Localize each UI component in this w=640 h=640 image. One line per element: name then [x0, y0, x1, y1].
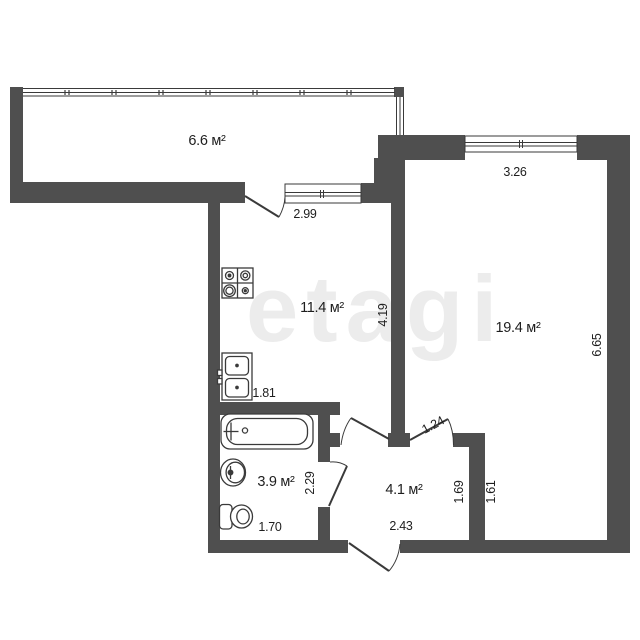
hallway-width-dim: 2.43 [389, 519, 412, 533]
kitchen-sink-icon [218, 353, 253, 400]
bathroom-door [329, 462, 347, 506]
bathroom-area-label: 3.9 м² [257, 474, 294, 490]
wall [394, 87, 404, 97]
wall [378, 135, 465, 160]
entrance-door [349, 543, 400, 571]
kitchen-window [285, 184, 361, 203]
living-room-window [465, 136, 577, 152]
floor-plan-drawing: etagi [0, 0, 640, 640]
wall [208, 540, 348, 553]
doors [245, 196, 454, 571]
hallway-area-label: 4.1 м² [385, 482, 422, 498]
room-depth-dim: 6.65 [590, 333, 604, 356]
hallway-depth-dim: 1.69 [452, 480, 466, 503]
wall [391, 135, 405, 447]
balcony-door [245, 196, 285, 217]
bathroom-depth-dim: 2.29 [303, 471, 317, 494]
room-width-dim: 3.26 [503, 165, 526, 179]
kitchen-hall-door [341, 418, 389, 445]
wall [10, 182, 245, 203]
kitchen-area-label: 11.4 м² [300, 300, 344, 316]
wall [400, 540, 630, 553]
room-inset-dim: 1.61 [484, 480, 498, 503]
wall [318, 507, 330, 540]
bathroom-width-dim: 1.70 [258, 520, 281, 534]
kitchen-width-dim: 2.99 [293, 207, 316, 221]
wall [330, 433, 340, 447]
wall [388, 433, 410, 447]
kitchen-bottom-dim: 1.81 [252, 386, 275, 400]
stove-icon [222, 268, 253, 298]
kitchen-depth-dim: 4.19 [376, 303, 390, 326]
wall [208, 402, 340, 415]
room-area-label: 19.4 м² [496, 320, 541, 336]
floor-plan: etagi [0, 0, 640, 640]
balcony-window [23, 89, 404, 136]
wall [318, 415, 330, 462]
washbasin-icon [221, 459, 246, 486]
wall [453, 433, 485, 447]
wall [607, 135, 630, 553]
wall [469, 447, 485, 540]
toilet-icon [220, 505, 253, 530]
balcony-area-label: 6.6 м² [188, 133, 225, 149]
wall [10, 87, 23, 183]
bathtub-icon [221, 414, 313, 449]
